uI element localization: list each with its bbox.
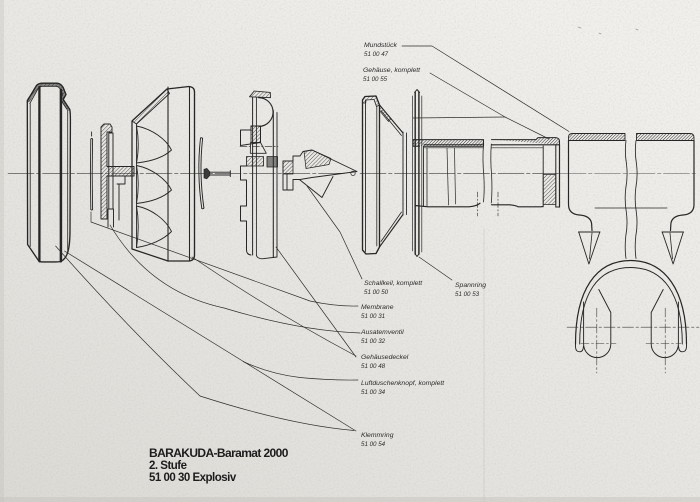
svg-text:BARAKUDA-Baramat 2000: BARAKUDA-Baramat 2000	[149, 446, 289, 460]
svg-text:51 00 50: 51 00 50	[364, 289, 389, 296]
svg-text:51 00 30 Explosiv: 51 00 30 Explosiv	[149, 472, 237, 484]
svg-text:51 00 32: 51 00 32	[361, 338, 386, 345]
svg-text:51 00 53: 51 00 53	[455, 291, 480, 298]
svg-text:51 00 48: 51 00 48	[361, 363, 386, 370]
svg-text:Spannring: Spannring	[455, 282, 486, 289]
svg-text:2. Stufe: 2. Stufe	[149, 460, 187, 472]
svg-text:Mundstück: Mundstück	[364, 42, 397, 49]
svg-text:Luftduschenknopf, komplett: Luftduschenknopf, komplett	[361, 380, 445, 387]
svg-text:Klemmring: Klemmring	[361, 432, 394, 439]
svg-text:Gehäusedeckel: Gehäusedeckel	[361, 354, 409, 361]
svg-text:Gehäuse, komplett: Gehäuse, komplett	[363, 67, 421, 74]
svg-text:51 00 55: 51 00 55	[363, 76, 388, 83]
svg-text:51 00 34: 51 00 34	[361, 389, 386, 396]
svg-text:51 00 31: 51 00 31	[361, 313, 385, 320]
svg-text:51 00 47: 51 00 47	[364, 51, 389, 58]
svg-text:Membrane: Membrane	[361, 304, 394, 311]
svg-text:Schallkeil, komplett: Schallkeil, komplett	[364, 280, 423, 287]
svg-text:51 00 54: 51 00 54	[361, 441, 386, 448]
svg-text:Ausatemventil: Ausatemventil	[360, 329, 404, 336]
